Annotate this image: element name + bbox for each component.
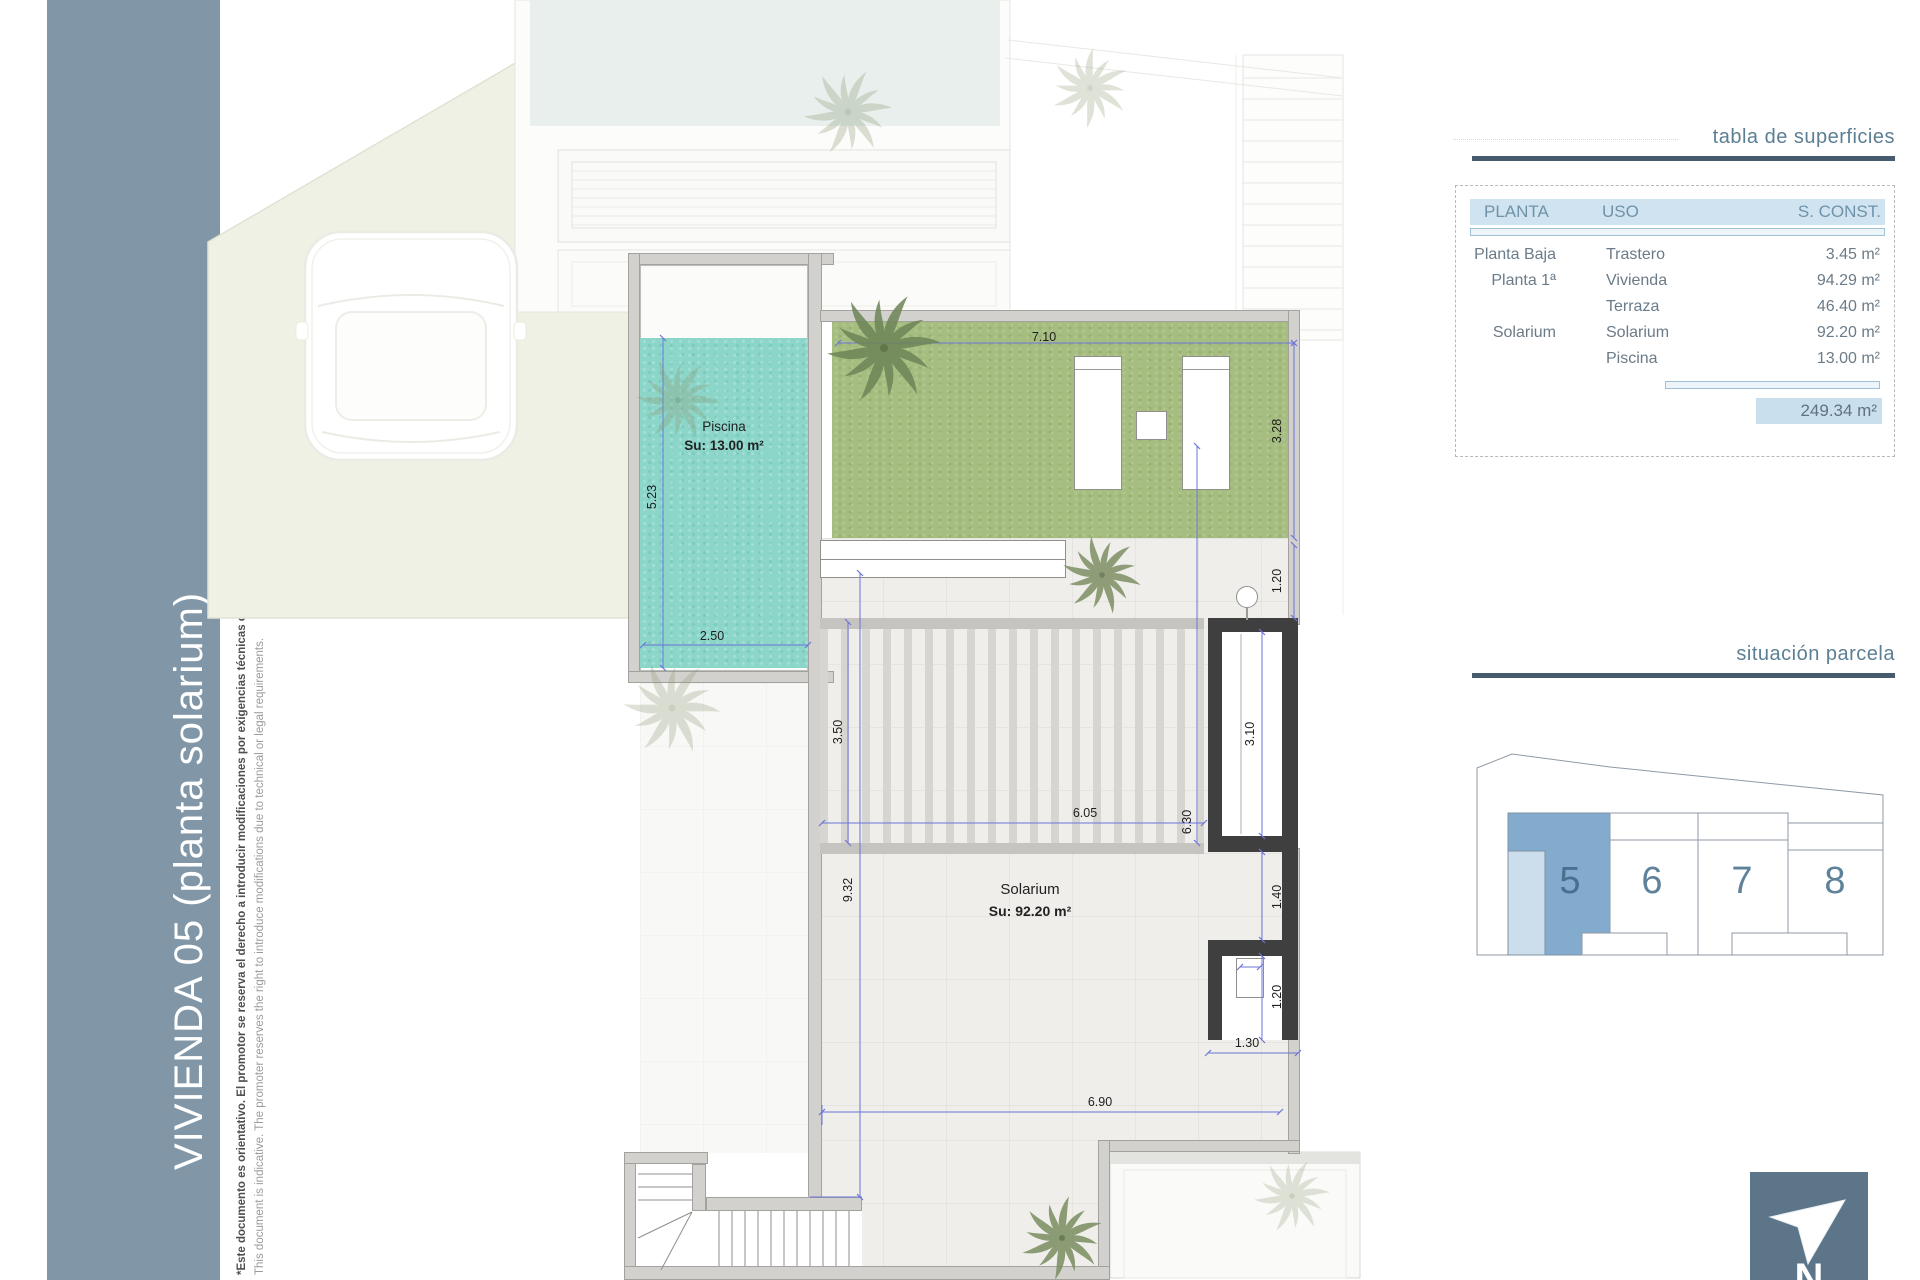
table-cell: 92.20 m² [1740,323,1880,343]
dim-label: 6.30 [1180,800,1194,844]
plot-label-7: 7 [1722,860,1762,903]
table-cell [1430,349,1556,369]
wall [624,1266,1110,1280]
stair-notch [1582,933,1667,955]
shower-stem [1246,608,1248,620]
wall [624,1152,708,1164]
dark-wall [1208,836,1298,852]
room-area-solarium: Su: 92.20 m² [960,903,1100,919]
stair-notch [1732,933,1847,955]
table-cell: Trastero [1606,245,1736,265]
outdoor-shower [1236,586,1258,608]
bench-divider [821,559,1065,560]
shower-tray [1236,958,1264,998]
sun-lounger [1182,356,1230,490]
col-header-uso: USO [1602,202,1672,222]
plot-5-light-shape [1508,851,1545,955]
ghost-louver-band [558,150,1010,242]
table-cell: Vivienda [1606,271,1736,291]
table-cell: 3.45 m² [1740,245,1880,265]
wall [628,671,834,683]
dim-label: 7.10 [1022,330,1066,344]
ghost-pool-below [530,0,1000,126]
pergola-rail-bottom [820,843,1204,854]
wall [1098,1140,1110,1276]
dim-label: 5.23 [645,475,659,519]
side-table [1136,411,1167,440]
stair-lower-flight [706,1211,862,1266]
room-label-solarium: Solarium [960,881,1100,898]
lower-roof-area [640,683,808,1153]
dim-label: 3.28 [1270,409,1284,453]
dark-wall [1282,852,1298,1040]
dim-label: 1.30 [1225,1036,1269,1050]
wall [624,1152,636,1280]
total-area: 249.34 m² [1756,398,1882,424]
plot-label-5: 5 [1550,860,1590,903]
table-cell: 13.00 m² [1740,349,1880,369]
wall [820,310,1300,322]
dim-label: 2.50 [690,629,734,643]
room-area-piscina: Su: 13.00 m² [664,438,784,453]
dark-wall [1282,618,1298,852]
col-header-planta: PLANTA [1484,202,1574,222]
dim-label: 6.05 [1063,806,1107,820]
north-label: N [1750,1256,1868,1280]
table-cell: 94.29 m² [1740,271,1880,291]
table-cell: Solarium [1606,323,1736,343]
bench [820,540,1066,578]
table-cell: 46.40 m² [1740,297,1880,317]
surfaces-panel-title: tabla de superficies [1450,126,1895,149]
dim-label: 1.20 [1270,559,1284,603]
dim-label: 3.50 [831,710,845,754]
table-cell: Piscina [1606,349,1736,369]
ghost-neighbor-terrace [1110,1152,1360,1278]
plot-label-6: 6 [1632,860,1672,903]
dark-wall [1208,618,1222,852]
ghost-car [296,232,526,460]
table-cell: Solarium [1430,323,1556,343]
dim-label: 1.40 [1270,875,1284,919]
title-rule [1472,156,1895,161]
dim-label: 1.20 [1270,975,1284,1019]
pool-water [640,338,808,668]
wall [706,1197,862,1211]
total-divider-bar [1665,381,1880,389]
wall [628,253,640,683]
dark-wall [1208,940,1222,1040]
floorplan-page: VIVIENDA 05 (planta solarium) *Este docu… [0,0,1920,1280]
table-cell: Planta Baja [1430,245,1556,265]
table-cell [1430,297,1556,317]
table-cell: Terraza [1606,297,1736,317]
table-cell: Planta 1ª [1430,271,1556,291]
wall [1098,1140,1300,1152]
pergola-slats [820,618,1204,854]
pergola-rail-top [820,618,1204,629]
wall [628,253,834,265]
wall [1288,310,1300,625]
north-compass-box: N [1750,1172,1868,1280]
col-header-sconst: S. CONST. [1765,202,1881,222]
dim-label: 3.10 [1243,712,1257,756]
plot-label-8: 8 [1815,860,1855,903]
room-label-piscina: Piscina [664,419,784,434]
sun-lounger [1074,356,1122,490]
wall [692,1164,706,1211]
lounger-headrest [1075,369,1121,370]
stair-upper-flight [636,1164,692,1266]
dim-label: 9.32 [841,868,855,912]
header-underline-bar [1470,228,1885,236]
lounger-headrest [1183,369,1229,370]
parcel-diagram [1450,740,1920,970]
location-panel-title: situación parcela [1450,643,1895,666]
title-rule [1472,673,1895,678]
dim-label: 6.90 [1078,1095,1122,1109]
